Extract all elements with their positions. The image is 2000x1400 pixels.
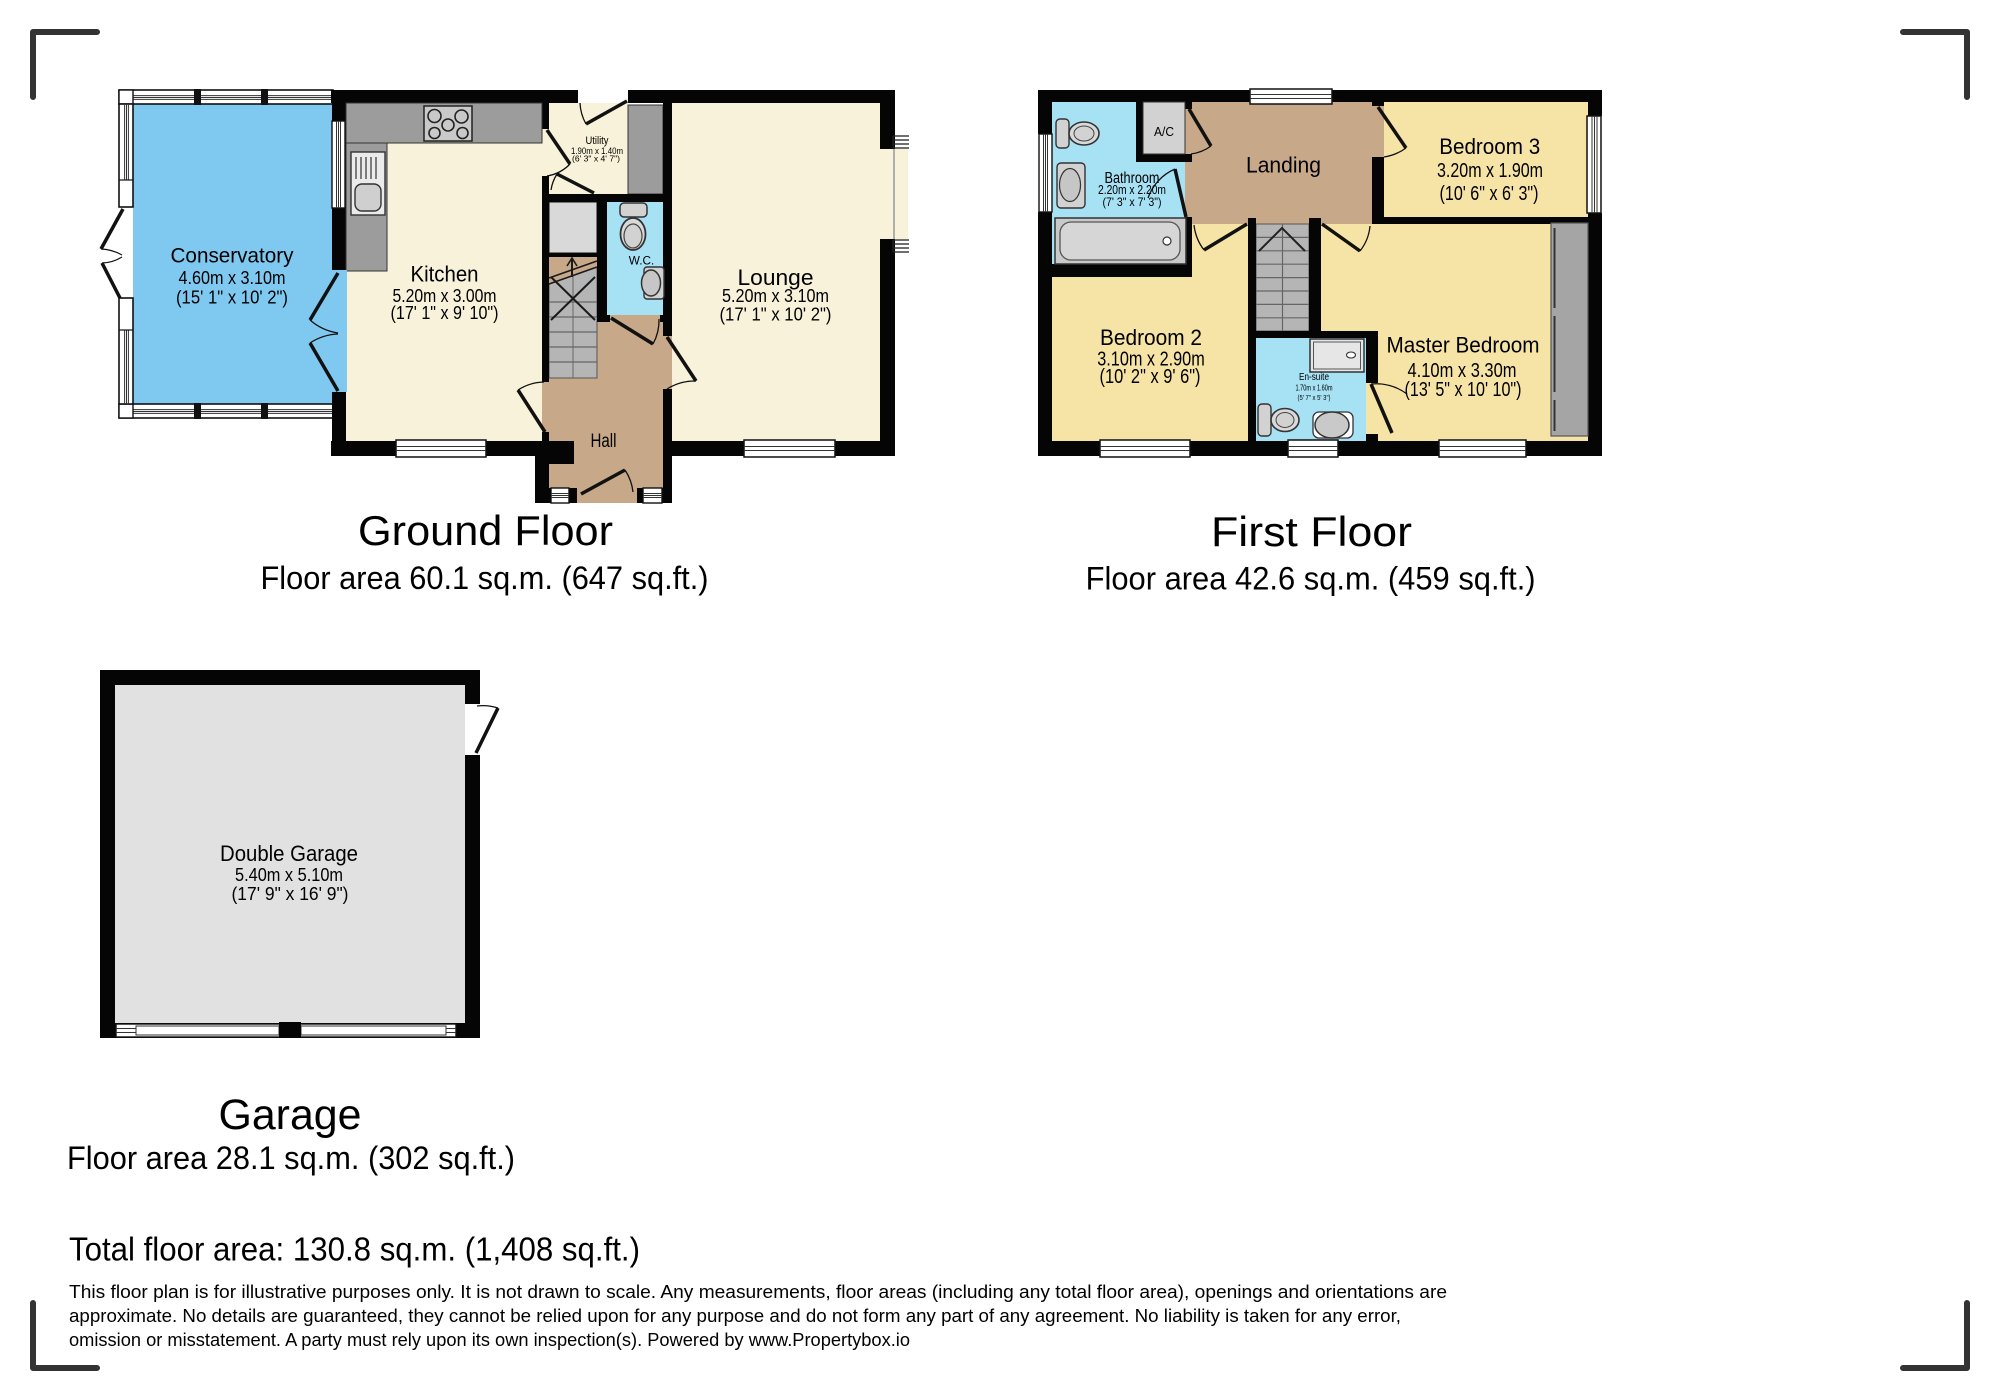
svg-text:Double Garage: Double Garage [220,841,358,866]
svg-text:Kitchen: Kitchen [411,261,479,286]
svg-text:approximate. No details are gu: approximate. No details are guaranteed, … [69,1305,1401,1326]
svg-text:(7' 3" x 7' 3"): (7' 3" x 7' 3") [1103,195,1162,209]
svg-text:(6' 3" x 4' 7"): (6' 3" x 4' 7") [572,154,620,164]
svg-text:(5' 7" x 5' 3"): (5' 7" x 5' 3") [1298,393,1331,402]
svg-text:Floor area 42.6 sq.m. (459 sq.: Floor area 42.6 sq.m. (459 sq.ft.) [1086,561,1536,597]
svg-text:(17' 1" x 9' 10"): (17' 1" x 9' 10") [391,303,499,323]
svg-text:A/C: A/C [1154,124,1174,139]
svg-text:Ground Floor: Ground Floor [358,507,613,554]
svg-text:Conservatory: Conservatory [171,244,294,268]
svg-text:Landing: Landing [1246,153,1321,178]
svg-text:(13' 5" x 10' 10"): (13' 5" x 10' 10") [1405,379,1522,401]
svg-text:1.70m x 1.60m: 1.70m x 1.60m [1296,384,1333,393]
svg-text:Hall: Hall [591,431,617,452]
svg-text:En-suite: En-suite [1299,371,1329,383]
svg-text:(10' 6" x 6' 3"): (10' 6" x 6' 3") [1440,183,1539,205]
svg-text:3.20m x 1.90m: 3.20m x 1.90m [1437,160,1543,182]
svg-text:(17' 9" x 16' 9"): (17' 9" x 16' 9") [232,884,349,904]
svg-text:First Floor: First Floor [1211,508,1412,555]
svg-text:(17' 1" x 10' 2"): (17' 1" x 10' 2") [720,304,832,324]
svg-text:Floor area 28.1 sq.m. (302 sq.: Floor area 28.1 sq.m. (302 sq.ft.) [67,1140,515,1176]
svg-text:(10' 2" x 9' 6"): (10' 2" x 9' 6") [1100,366,1201,388]
svg-text:Garage: Garage [219,1091,362,1139]
svg-text:Bedroom 3: Bedroom 3 [1439,134,1540,159]
svg-text:Floor area 60.1 sq.m. (647 sq.: Floor area 60.1 sq.m. (647 sq.ft.) [261,560,709,596]
svg-text:5.20m x 3.10m: 5.20m x 3.10m [722,286,829,306]
svg-text:(15' 1" x 10' 2"): (15' 1" x 10' 2") [176,288,288,308]
svg-text:Bedroom 2: Bedroom 2 [1100,325,1202,350]
svg-text:omission or misstatement. A pa: omission or misstatement. A party must r… [69,1329,910,1350]
svg-text:Total floor area: 130.8 sq.m.: Total floor area: 130.8 sq.m. (1,408 sq.… [69,1231,640,1268]
svg-text:Master Bedroom: Master Bedroom [1387,333,1540,358]
svg-text:4.60m x 3.10m: 4.60m x 3.10m [179,268,286,288]
svg-text:This floor plan is for illustr: This floor plan is for illustrative purp… [69,1281,1447,1302]
svg-text:W.C.: W.C. [629,254,655,268]
svg-text:5.40m x 5.10m: 5.40m x 5.10m [235,865,343,885]
